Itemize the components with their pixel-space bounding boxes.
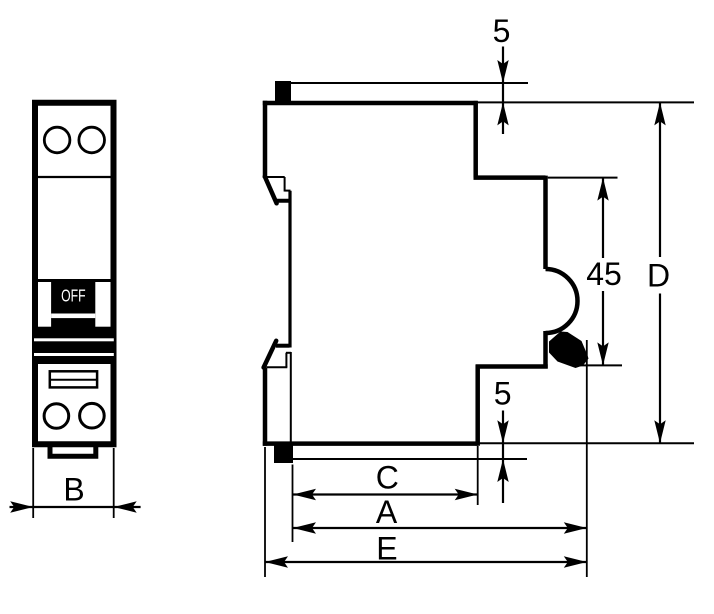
svg-text:45: 45 (586, 256, 622, 292)
svg-text:D: D (647, 258, 670, 294)
svg-text:C: C (376, 460, 399, 496)
svg-text:5: 5 (493, 13, 511, 49)
svg-text:5: 5 (494, 376, 512, 412)
svg-text:E: E (376, 531, 397, 567)
svg-text:OFF: OFF (61, 286, 85, 306)
svg-text:A: A (376, 494, 398, 530)
svg-text:B: B (63, 472, 84, 508)
